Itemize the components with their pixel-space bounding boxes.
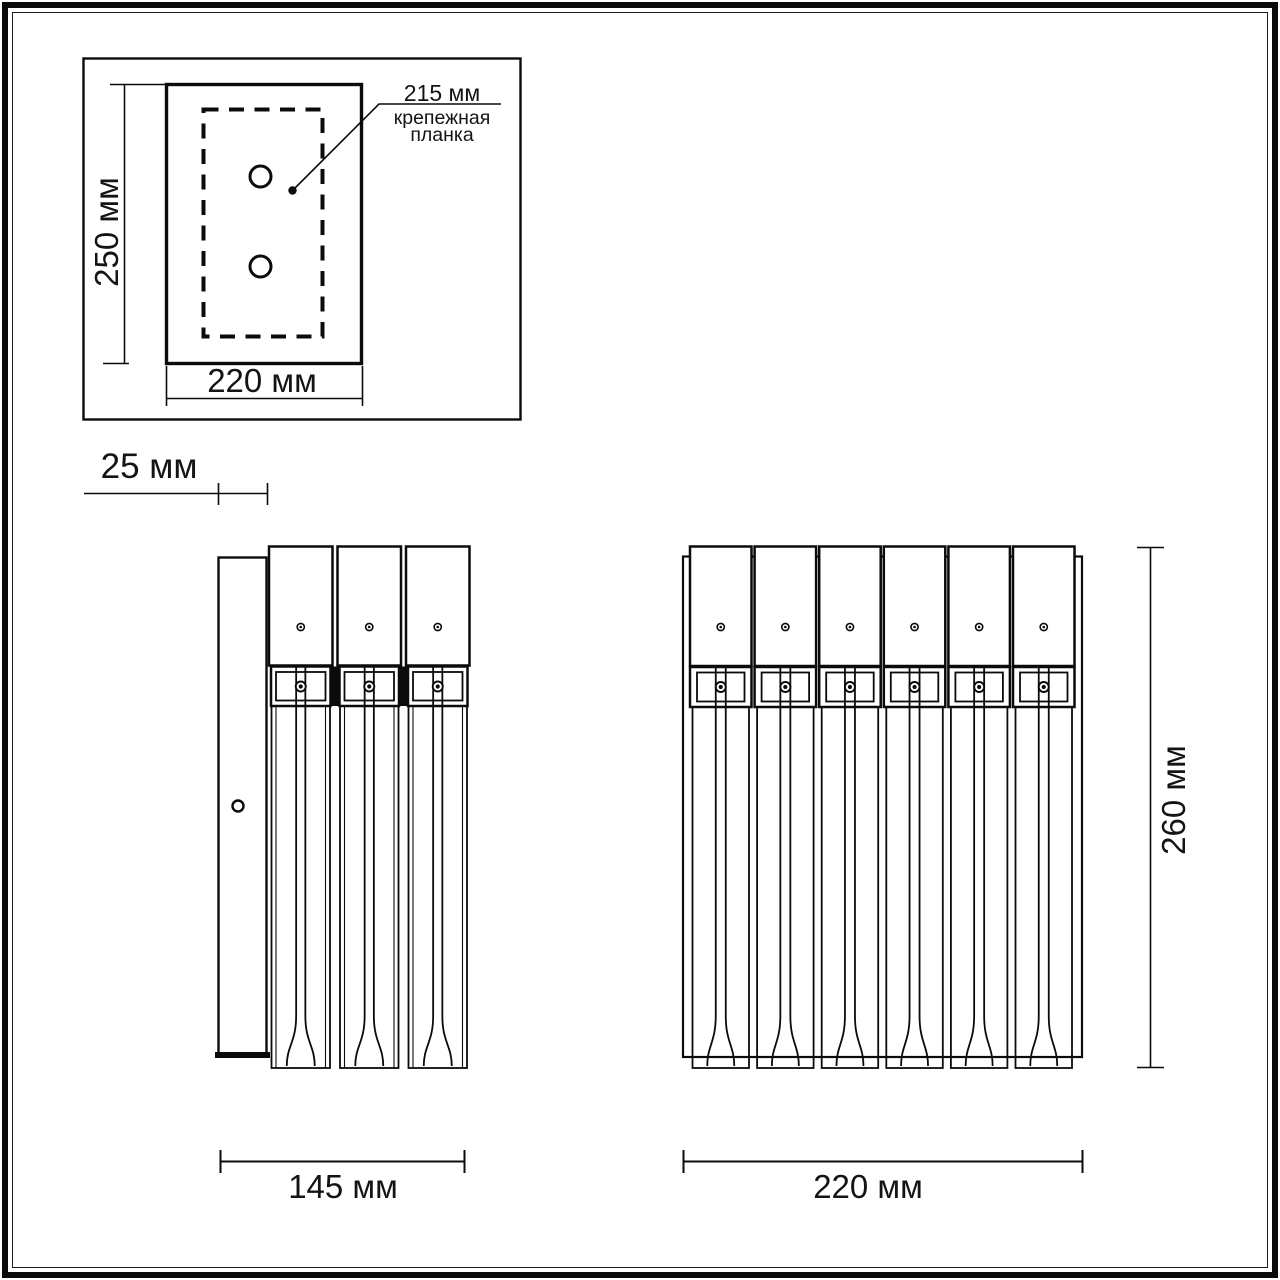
module-top-box	[755, 547, 817, 667]
glass-rod-right-edge	[374, 667, 383, 1067]
holder-screw-dot	[436, 684, 440, 688]
holder-screw-dot	[367, 684, 371, 688]
drawing-page: 250 мм 220 мм 215 мм крепежная планка 25…	[0, 0, 1280, 1280]
callout-leader-dot	[288, 186, 296, 194]
top-box-hole-dot	[719, 626, 722, 629]
module-top-box	[819, 547, 881, 667]
callout-line2: планка	[410, 124, 473, 146]
dim-label-250: 250 мм	[87, 152, 127, 312]
module-top-box	[338, 547, 402, 666]
dim-label-25: 25 мм	[69, 449, 229, 485]
dim-label-220-front: 220 мм	[788, 1170, 948, 1204]
glass-rod-left-edge	[424, 667, 433, 1067]
top-box-hole-dot	[436, 626, 439, 629]
holder-screw-dot	[912, 685, 916, 689]
glass-rod-right-edge	[442, 667, 451, 1067]
side-modules-group	[269, 547, 470, 1069]
backplate-rect	[167, 85, 362, 364]
holder-screw-dot	[977, 685, 981, 689]
holder-band-separator	[331, 667, 339, 707]
glass-panel	[340, 706, 399, 1068]
holder-screw-dot	[1042, 685, 1046, 689]
holder-band-separator	[400, 667, 408, 707]
top-box-hole-dot	[849, 626, 852, 629]
holder-screw-dot	[848, 685, 852, 689]
side-view-drawing	[215, 547, 470, 1174]
holder-screw-dot	[783, 685, 787, 689]
glass-panel	[272, 706, 331, 1068]
module-top-box	[1013, 547, 1075, 667]
glass-rod-right-edge	[305, 667, 314, 1067]
holder-screw-dot	[299, 684, 303, 688]
top-box-hole-dot	[299, 626, 302, 629]
holder-screw-dot	[719, 685, 723, 689]
wall-plate-hole	[233, 801, 244, 812]
technical-drawing-svg	[0, 0, 1280, 1280]
glass-rod-left-edge	[287, 667, 296, 1067]
glass-rod-left-edge	[355, 667, 364, 1067]
dim-label-220-top: 220 мм	[182, 364, 342, 398]
top-box-hole-dot	[784, 626, 787, 629]
top-box-hole-dot	[1042, 626, 1045, 629]
dim-label-145: 145 мм	[263, 1170, 423, 1204]
module-top-box	[269, 547, 333, 666]
callout-text: крепежная планка	[352, 110, 532, 146]
top-box-hole-dot	[978, 626, 981, 629]
top-box-hole-dot	[913, 626, 916, 629]
top-box-hole-dot	[368, 626, 371, 629]
module-top-box	[948, 547, 1010, 667]
module-top-box	[884, 547, 946, 667]
module-top-box	[690, 547, 752, 667]
module-top-box	[406, 547, 470, 666]
dim-label-260: 260 мм	[1154, 720, 1194, 880]
glass-panel	[409, 706, 468, 1068]
callout-value-215: 215 мм	[362, 80, 522, 106]
front-view-drawing	[683, 547, 1164, 1174]
